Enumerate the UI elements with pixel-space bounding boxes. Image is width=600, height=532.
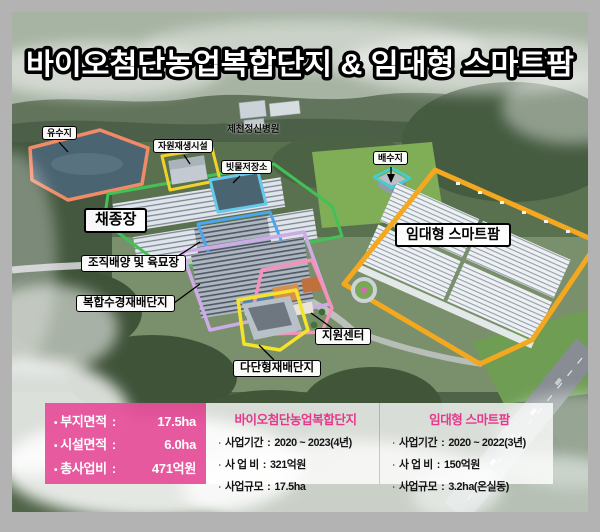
detail-column-bio: 바이오첨단농업복합단지 ㆍ 사업기간 : 2020 ~ 2023(4년) ㆍ 사… xyxy=(206,403,379,484)
detail-row: ㆍ 사업규모 : 17.5ha xyxy=(216,478,375,494)
detail-panel: 바이오첨단농업복합단지 ㆍ 사업기간 : 2020 ~ 2023(4년) ㆍ 사… xyxy=(206,403,553,484)
bullet-icon: • xyxy=(54,465,57,476)
bullet-icon: ㆍ xyxy=(216,482,223,493)
detail-row: ㆍ 사업기간 : 2020 ~ 2022(3년) xyxy=(390,434,549,450)
summary-label: 시설면적 xyxy=(60,434,107,453)
detail-column-title: 임대형 스마트팜 xyxy=(390,409,549,428)
zone-label-bokhap: 복합수경재배단지 xyxy=(76,295,175,312)
bullet-icon: ㆍ xyxy=(390,438,397,449)
zone-label-baesuji: 배수지 xyxy=(373,151,408,165)
detail-row: ㆍ 사업기간 : 2020 ~ 2023(4년) xyxy=(216,434,375,450)
zone-label-bitmul: 빗물저장소 xyxy=(221,160,272,174)
summary-panel: • 부지면적 : 17.5ha • 시설면적 : 6.0ha • 총사업비 : … xyxy=(45,403,206,484)
detail-row: ㆍ 사 업 비 : 150억원 xyxy=(390,456,549,472)
zone-label-chaejong: 채종장 xyxy=(84,208,147,233)
bullet-icon: ㆍ xyxy=(390,460,397,471)
zone-label-hospital: 제천정신병원 xyxy=(227,121,279,135)
zone-label-dadan: 다단형재배단지 xyxy=(233,360,321,377)
detail-row: ㆍ 사업규모 : 3.2ha(온실동) xyxy=(390,478,549,494)
zone-label-jiwon: 지원센터 xyxy=(315,328,371,345)
zone-label-smartfarm: 임대형 스마트팜 xyxy=(395,223,511,247)
summary-row: • 총사업비 : 471억원 xyxy=(54,458,198,477)
summary-label: 총사업비 xyxy=(60,458,107,477)
bullet-icon: • xyxy=(54,418,57,429)
detail-row: ㆍ 사 업 비 : 321억원 xyxy=(216,456,375,472)
zone-label-yusuji: 유수지 xyxy=(42,126,77,140)
bullet-icon: ㆍ xyxy=(390,482,397,493)
bullet-icon: • xyxy=(54,441,57,452)
aerial-rendering: 바이오첨단농업복합단지 & 임대형 스마트팜 유수지 자원재생시설 제천정신병원… xyxy=(12,12,588,512)
summary-row: • 부지면적 : 17.5ha xyxy=(54,411,198,430)
summary-value: 6.0ha xyxy=(121,437,198,452)
summary-value: 17.5ha xyxy=(121,414,198,429)
zone-label-jawon: 자원재생시설 xyxy=(153,139,213,153)
title-banner: 바이오첨단농업복합단지 & 임대형 스마트팜 xyxy=(12,38,588,88)
bullet-icon: ㆍ xyxy=(216,460,223,471)
summary-label: 부지면적 xyxy=(60,411,107,430)
bullet-icon: ㆍ xyxy=(216,438,223,449)
detail-column-smartfarm: 임대형 스마트팜 ㆍ 사업기간 : 2020 ~ 2022(3년) ㆍ 사 업 … xyxy=(379,403,553,484)
detail-column-title: 바이오첨단농업복합단지 xyxy=(216,409,375,428)
page-title: 바이오첨단농업복합단지 & 임대형 스마트팜 xyxy=(26,48,574,81)
summary-value: 471억원 xyxy=(121,458,198,477)
infographic-root: { "title": "바이오첨단농업복합단지 & 임대형 스마트팜", "ui… xyxy=(0,0,600,532)
zone-label-jojik: 조직배양 및 육묘장 xyxy=(81,255,186,272)
roundabout xyxy=(353,279,375,301)
summary-row: • 시설면적 : 6.0ha xyxy=(54,434,198,453)
